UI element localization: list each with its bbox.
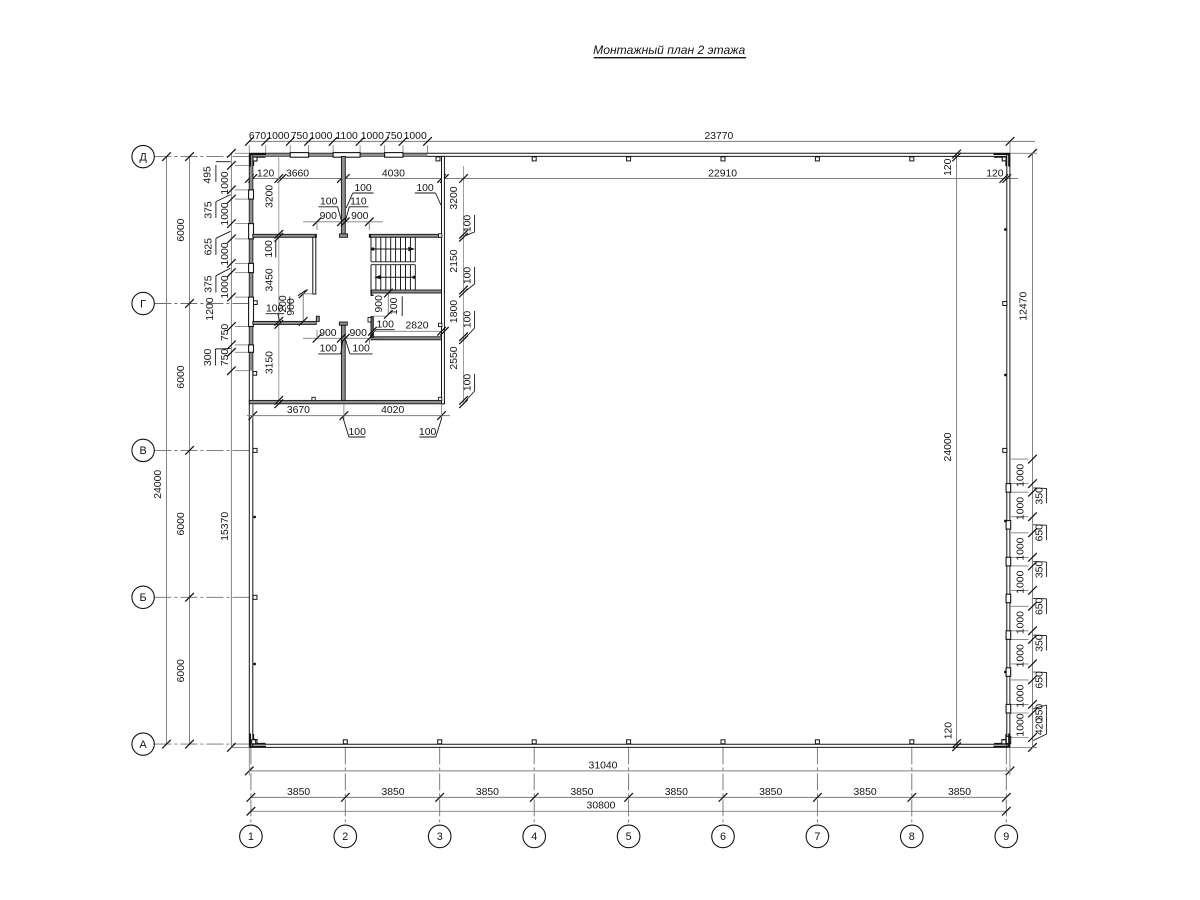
svg-text:900: 900 <box>374 295 385 313</box>
svg-text:100: 100 <box>354 183 372 194</box>
svg-text:8: 8 <box>909 831 915 843</box>
svg-text:1: 1 <box>248 831 254 843</box>
svg-text:100: 100 <box>349 427 367 438</box>
svg-text:1000: 1000 <box>220 275 231 298</box>
svg-text:375: 375 <box>204 201 215 219</box>
svg-text:120: 120 <box>986 168 1004 179</box>
svg-text:350: 350 <box>1035 634 1046 652</box>
svg-text:3450: 3450 <box>264 268 275 291</box>
svg-text:1000: 1000 <box>1016 713 1027 736</box>
svg-text:3850: 3850 <box>759 787 782 798</box>
svg-text:15370: 15370 <box>220 512 231 541</box>
svg-text:3670: 3670 <box>287 405 310 416</box>
svg-text:100: 100 <box>320 344 338 355</box>
svg-text:3850: 3850 <box>948 787 971 798</box>
svg-text:1000: 1000 <box>220 242 231 265</box>
svg-text:1000: 1000 <box>1016 684 1027 707</box>
svg-text:3200: 3200 <box>449 186 460 209</box>
svg-text:200: 200 <box>278 295 289 313</box>
svg-text:650: 650 <box>1035 597 1046 615</box>
svg-text:А: А <box>139 739 147 751</box>
svg-text:900: 900 <box>319 328 337 339</box>
svg-text:100: 100 <box>462 374 473 392</box>
svg-text:100: 100 <box>320 197 338 208</box>
svg-text:420: 420 <box>1035 718 1046 736</box>
svg-text:1200: 1200 <box>205 297 216 320</box>
svg-text:4030: 4030 <box>382 168 405 179</box>
svg-text:6000: 6000 <box>176 512 187 535</box>
svg-text:3150: 3150 <box>264 351 275 374</box>
svg-text:2820: 2820 <box>405 321 428 332</box>
svg-text:1000: 1000 <box>1016 611 1027 634</box>
svg-text:Д: Д <box>139 151 147 163</box>
svg-text:110: 110 <box>350 197 367 208</box>
svg-text:6000: 6000 <box>176 365 187 388</box>
svg-text:3850: 3850 <box>570 787 593 798</box>
svg-text:650: 650 <box>1035 524 1046 542</box>
svg-text:100: 100 <box>419 427 437 438</box>
svg-text:Монтажный план 2 этажа: Монтажный план 2 этажа <box>593 43 745 57</box>
svg-text:650: 650 <box>1035 671 1046 689</box>
svg-text:100: 100 <box>264 240 275 258</box>
svg-text:625: 625 <box>204 238 215 256</box>
svg-text:1000: 1000 <box>361 131 384 142</box>
svg-text:6: 6 <box>720 831 726 843</box>
svg-text:120: 120 <box>943 158 954 176</box>
svg-text:1800: 1800 <box>449 300 460 323</box>
svg-text:2: 2 <box>342 831 348 843</box>
svg-text:350: 350 <box>1035 487 1046 505</box>
svg-text:750: 750 <box>291 131 309 142</box>
svg-text:2150: 2150 <box>449 249 460 272</box>
svg-text:670: 670 <box>249 131 267 142</box>
svg-text:3850: 3850 <box>381 787 404 798</box>
svg-text:100: 100 <box>416 183 434 194</box>
svg-text:1000: 1000 <box>404 131 427 142</box>
svg-text:100: 100 <box>377 320 395 331</box>
svg-text:750: 750 <box>385 131 403 142</box>
svg-text:120: 120 <box>944 722 955 740</box>
svg-text:6000: 6000 <box>176 659 187 682</box>
svg-text:300: 300 <box>203 349 214 367</box>
svg-text:100: 100 <box>389 297 400 315</box>
svg-text:1000: 1000 <box>1016 497 1027 520</box>
svg-text:4: 4 <box>531 831 537 843</box>
svg-text:1000: 1000 <box>1016 537 1027 560</box>
svg-text:3850: 3850 <box>665 787 688 798</box>
svg-text:1000: 1000 <box>1016 570 1027 593</box>
svg-text:1000: 1000 <box>266 131 289 142</box>
svg-text:3850: 3850 <box>476 787 499 798</box>
svg-text:375: 375 <box>204 275 215 293</box>
svg-text:100: 100 <box>462 311 473 329</box>
svg-text:3850: 3850 <box>287 787 310 798</box>
svg-text:120: 120 <box>257 168 275 179</box>
svg-text:495: 495 <box>203 166 214 184</box>
svg-text:31040: 31040 <box>589 760 618 771</box>
svg-text:100: 100 <box>462 215 473 233</box>
svg-text:24000: 24000 <box>153 470 164 499</box>
svg-text:900: 900 <box>351 211 369 222</box>
svg-text:22910: 22910 <box>708 168 737 179</box>
svg-text:1000: 1000 <box>220 202 231 225</box>
svg-text:3: 3 <box>437 831 443 843</box>
svg-text:350: 350 <box>1035 561 1046 579</box>
svg-text:1000: 1000 <box>220 171 231 194</box>
svg-text:6000: 6000 <box>176 218 187 241</box>
svg-text:750: 750 <box>220 324 231 342</box>
svg-text:Г: Г <box>140 298 146 310</box>
svg-text:3850: 3850 <box>854 787 877 798</box>
svg-text:23770: 23770 <box>704 131 733 142</box>
svg-text:1000: 1000 <box>1016 644 1027 667</box>
svg-text:2550: 2550 <box>449 346 460 369</box>
svg-text:1000: 1000 <box>309 131 332 142</box>
svg-text:7: 7 <box>814 831 820 843</box>
svg-text:9: 9 <box>1003 831 1009 843</box>
svg-text:750: 750 <box>220 349 231 367</box>
svg-text:3660: 3660 <box>286 168 309 179</box>
svg-text:900: 900 <box>320 211 338 222</box>
svg-text:12470: 12470 <box>1018 292 1029 321</box>
svg-text:1000: 1000 <box>1016 464 1027 487</box>
svg-text:100: 100 <box>352 344 370 355</box>
svg-text:900: 900 <box>350 328 368 339</box>
svg-text:4020: 4020 <box>381 405 404 416</box>
svg-text:3200: 3200 <box>264 185 275 208</box>
svg-text:1100: 1100 <box>335 131 358 142</box>
svg-text:24000: 24000 <box>943 432 954 461</box>
svg-text:30800: 30800 <box>587 801 616 812</box>
svg-text:Б: Б <box>140 592 147 604</box>
svg-text:5: 5 <box>626 831 632 843</box>
svg-text:100: 100 <box>462 267 473 285</box>
svg-text:В: В <box>139 445 146 457</box>
